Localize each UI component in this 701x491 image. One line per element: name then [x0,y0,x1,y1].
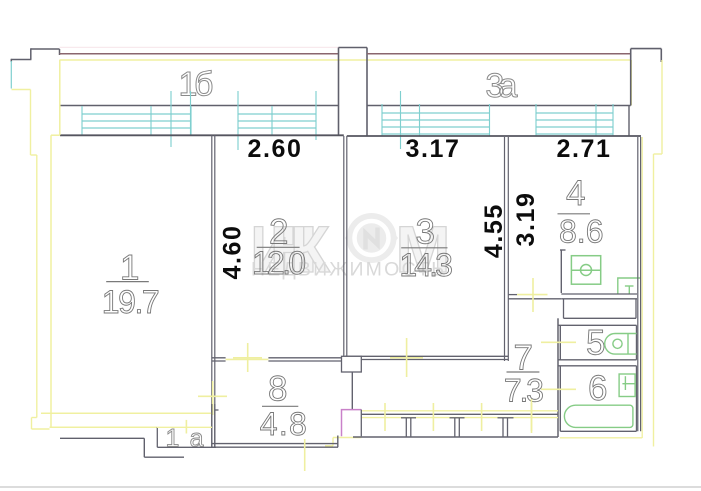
svg-text:4.55: 4.55 [480,203,508,258]
svg-text:3а: 3а [485,67,517,105]
svg-text:4.60: 4.60 [219,224,247,279]
svg-text:3.19: 3.19 [512,191,540,246]
svg-text:6: 6 [588,369,607,408]
svg-text:3.17: 3.17 [406,135,461,163]
svg-text:5: 5 [586,323,605,362]
svg-text:2.60: 2.60 [248,135,303,163]
svg-text:3: 3 [416,213,435,252]
svg-text:12.0: 12.0 [252,245,306,281]
svg-text:8: 8 [268,370,287,409]
svg-text:4: 4 [566,174,585,213]
svg-text:1б: 1б [179,65,214,103]
svg-text:2.71: 2.71 [557,135,612,163]
svg-text:14.3: 14.3 [399,247,453,283]
svg-text:4.8: 4.8 [260,406,307,442]
svg-text:19.7: 19.7 [102,284,160,320]
svg-text:8.6: 8.6 [559,213,603,249]
svg-text:7.3: 7.3 [504,372,544,408]
